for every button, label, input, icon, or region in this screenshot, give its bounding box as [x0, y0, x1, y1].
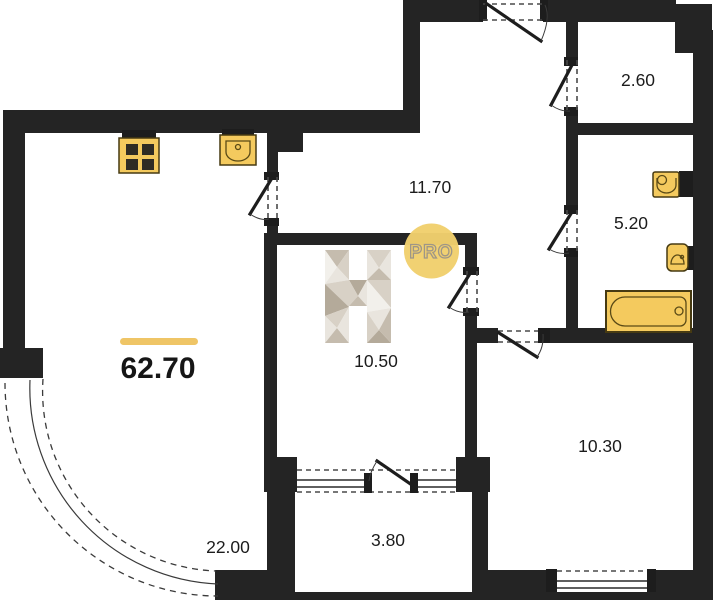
area-label-balcony: 3.80 [371, 530, 405, 550]
total-area-underline [120, 338, 198, 345]
door-room [498, 331, 543, 357]
floor-plan-drawing: PRO 62.70 22.00 11.70 2.60 5.20 10.50 10… [0, 0, 715, 600]
door-bedroom [449, 271, 477, 312]
watermark-letter-h [325, 250, 391, 343]
area-label-bathroom: 5.20 [614, 213, 648, 233]
balcony-door-window [297, 461, 456, 493]
bathtub-icon [606, 291, 691, 332]
area-label-hallway: 11.70 [409, 177, 452, 197]
entrance-door [483, 4, 547, 41]
area-label-wardrobe: 2.60 [621, 70, 655, 90]
watermark-pro-badge: PRO [404, 224, 459, 279]
stove-icon [119, 130, 159, 173]
door-wardrobe [551, 60, 577, 112]
door-kitchen-living [250, 177, 277, 219]
floor-plan: PRO 62.70 22.00 11.70 2.60 5.20 10.50 10… [0, 0, 715, 600]
balcony-glazing-curve [5, 379, 218, 596]
area-label-total: 62.70 [120, 352, 195, 385]
kitchen-sink-icon [220, 129, 256, 165]
washbasin-icon [653, 171, 693, 197]
area-label-bedroom: 10.50 [354, 351, 398, 371]
area-label-room: 10.30 [578, 436, 622, 456]
watermark-pro-label: PRO [409, 242, 453, 263]
door-bathroom [549, 210, 577, 254]
toilet-icon [667, 244, 694, 271]
window-room [557, 571, 647, 588]
area-label-living-kitchen: 22.00 [206, 537, 250, 557]
